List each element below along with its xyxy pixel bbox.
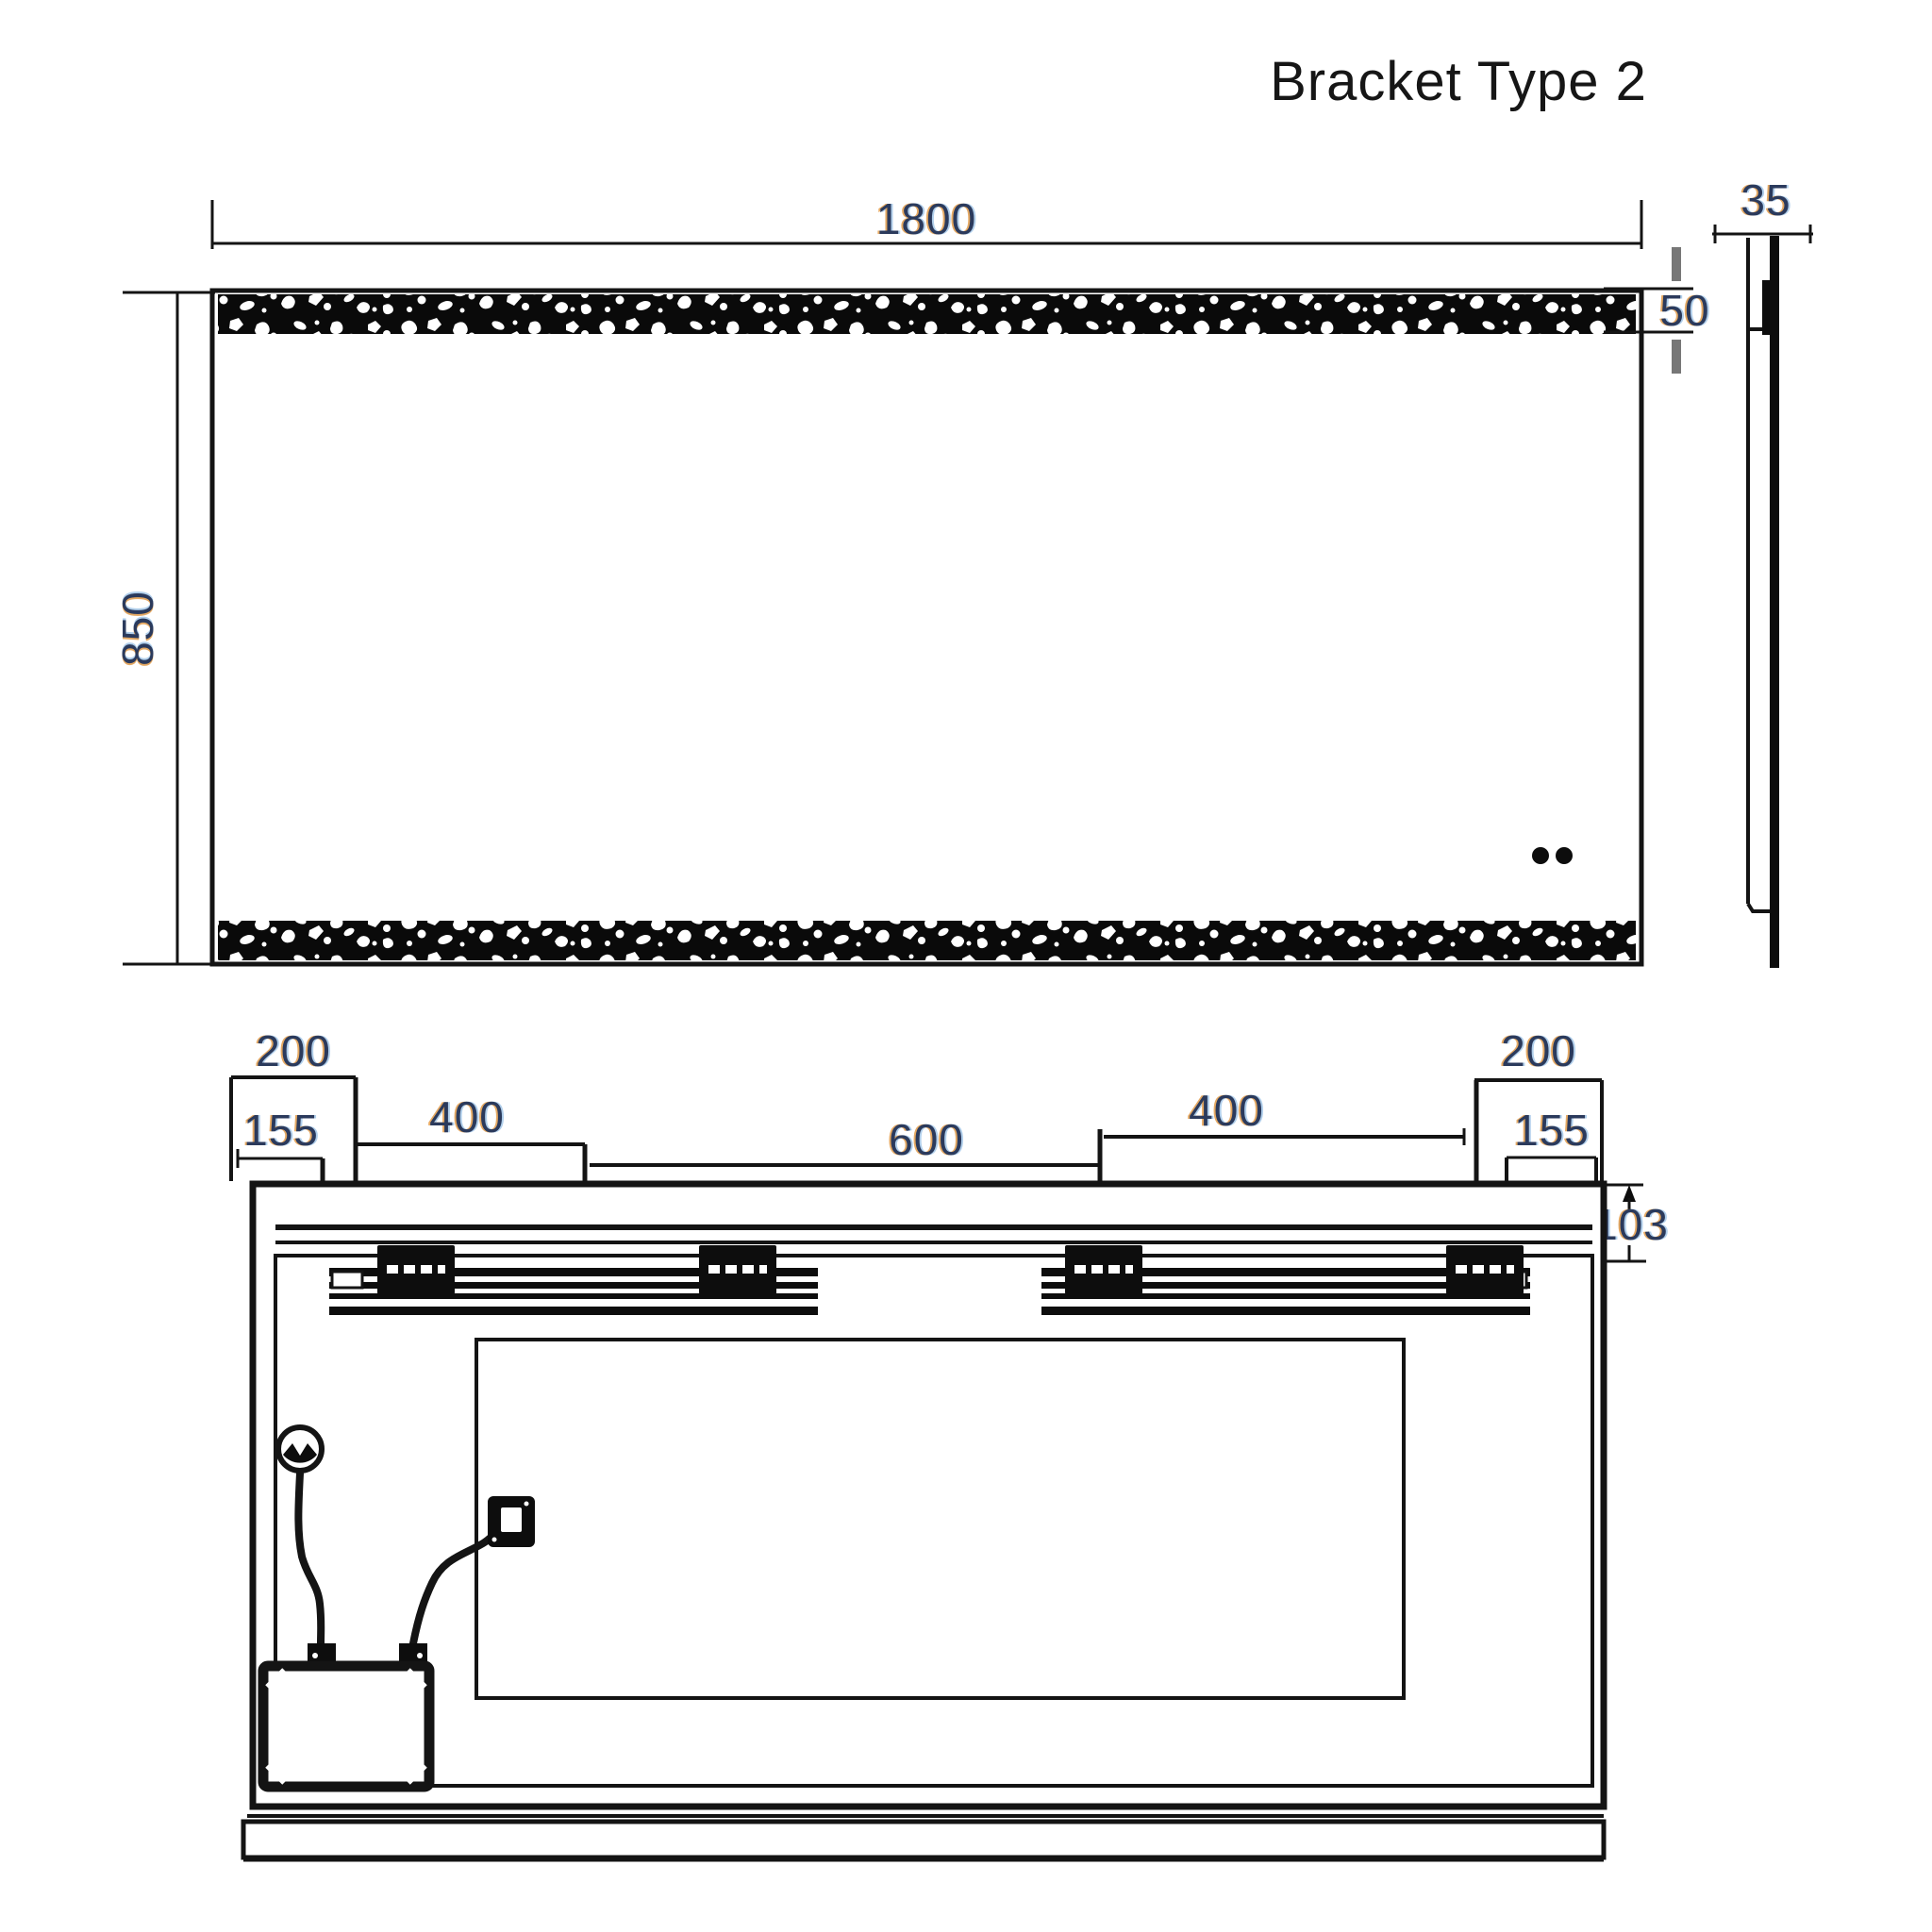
drawing-title: Bracket Type 2 — [1270, 51, 1647, 112]
dimension-height-850: 850 — [113, 292, 215, 964]
right-span-label: 400 — [1189, 1086, 1264, 1135]
strip-dimension-label: 50 — [1659, 286, 1709, 335]
height-dimension-label: 850 — [113, 591, 162, 666]
dimension-right-span-400: 400 — [1104, 1086, 1464, 1145]
led-strip-top — [218, 294, 1636, 334]
wall-connector — [488, 1496, 535, 1547]
left-span-label: 400 — [429, 1092, 505, 1141]
right-offset-label: 155 — [1514, 1106, 1590, 1155]
bracket-clip-4 — [1446, 1245, 1524, 1294]
rear-view: 200 155 400 600 400 200 — [231, 1026, 1669, 1858]
junction-box — [263, 1643, 429, 1787]
mirror-side-profile — [1748, 236, 1779, 968]
led-strip-bottom — [218, 921, 1636, 960]
center-span-label: 600 — [889, 1115, 964, 1164]
bracket-clip-1 — [377, 1245, 455, 1294]
depth-dimension-label: 35 — [1740, 175, 1790, 225]
dimension-width-1800: 1800 — [212, 194, 1641, 249]
cable-grommet — [278, 1427, 322, 1471]
width-dimension-label: 1800 — [876, 194, 976, 243]
bracket-clip-2 — [699, 1245, 776, 1294]
mirror-outline — [212, 291, 1641, 964]
left-offset-label: 155 — [243, 1106, 319, 1155]
rail-end-cap — [332, 1272, 362, 1288]
bracket-clip-3 — [1065, 1245, 1142, 1294]
side-bracket-plate — [1762, 280, 1770, 335]
left-bracket-width-label: 200 — [256, 1026, 331, 1075]
dimension-depth-35: 35 — [1712, 175, 1813, 243]
side-view: 35 — [1712, 175, 1813, 968]
bottom-rail — [243, 1816, 1604, 1858]
rear-panel-outline — [253, 1184, 1604, 1807]
technical-drawing-canvas: Bracket Type 2 1800 850 — [0, 0, 1932, 1932]
front-view: 1800 850 50 — [113, 194, 1710, 964]
bracket-type-2-diagram: Bracket Type 2 1800 850 — [0, 0, 1932, 1932]
right-bracket-width-label: 200 — [1501, 1026, 1576, 1075]
